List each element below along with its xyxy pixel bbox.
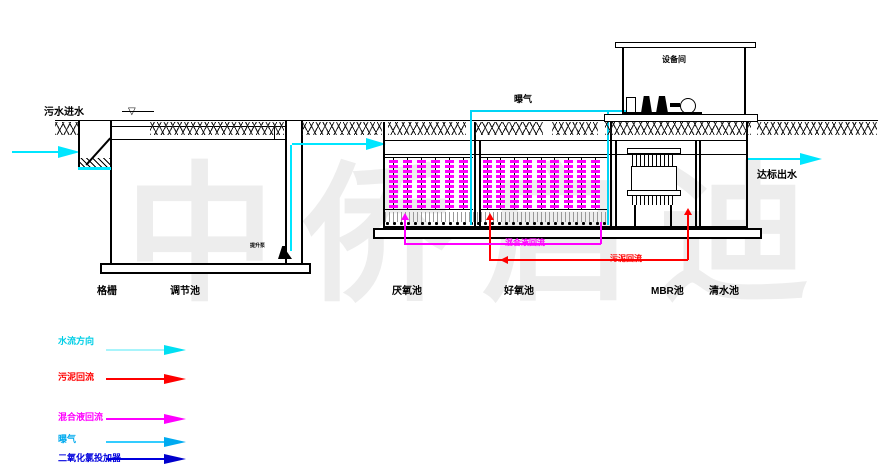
legend-arrow-line — [106, 349, 164, 351]
divider-mbr-clearwater-b — [699, 140, 701, 228]
soil-hatch-segment — [475, 122, 543, 135]
sludge-return-riser-mbr — [687, 213, 689, 260]
lift-pump-label: 提升泵 — [250, 244, 265, 249]
legend-item-label: 曝气 — [58, 435, 76, 444]
soil-hatch-segment — [55, 122, 78, 135]
mbr-module-leg-left — [634, 205, 636, 226]
equipment-room-label: 设备间 — [662, 56, 686, 64]
pump-pipe-vertical — [290, 145, 292, 251]
blower-2 — [656, 96, 668, 113]
media-column-packing — [550, 160, 559, 208]
media-column-packing — [417, 160, 426, 208]
media-column-packing — [564, 160, 573, 208]
biotank-left-wall-stub — [383, 122, 385, 140]
outlet-arrow-head — [800, 153, 822, 165]
sludge-return-riser-aerobic — [489, 218, 491, 260]
sludge-return-horizontal — [489, 259, 688, 261]
soil-hatch-segment — [388, 122, 466, 135]
legend-arrow-line — [106, 418, 164, 420]
tank-label-anaerobic: 厌氧池 — [392, 287, 422, 297]
tank-label-aerobic: 好氧池 — [504, 287, 534, 297]
media-column-packing — [510, 160, 519, 208]
tank-label-clearwater: 清水池 — [709, 287, 739, 297]
process-flow-diagram: 中侨启迪 污水进水 ▽ 提升泵 曝气 — [0, 0, 880, 473]
legend-arrow-head — [164, 414, 186, 424]
biotank-right-wall — [746, 140, 748, 228]
media-column-packing — [389, 160, 398, 208]
media-column-packing — [445, 160, 454, 208]
media-column-packing — [537, 160, 546, 208]
regtank-right-wall — [285, 120, 287, 263]
media-column-packing — [523, 160, 532, 208]
legend-arrow-head — [164, 454, 186, 464]
media-column-packing — [496, 160, 505, 208]
legend-arrow-head — [164, 437, 186, 447]
legend-arrow-line — [106, 378, 164, 380]
media-column-packing — [459, 160, 468, 208]
media-column-packing — [577, 160, 586, 208]
pump-pipe-horizontal — [292, 143, 368, 145]
soil-hatch-segment — [552, 122, 598, 135]
sludge-return-arrow-aerobic — [486, 213, 494, 220]
mbr-module-box — [631, 166, 677, 192]
divider-mbr-clearwater-a — [695, 140, 697, 228]
divider-aerobic-mbr-a — [610, 140, 612, 228]
legend-item-label: 水流方向 — [58, 337, 94, 346]
legend-item-label: 混合液回流 — [58, 413, 103, 422]
biotank-rim-bottom — [383, 154, 748, 155]
media-column-packing — [431, 160, 440, 208]
equipment-room-platform — [604, 114, 758, 122]
mixed-return-horizontal — [404, 243, 601, 245]
biotank-rim-top — [383, 140, 748, 141]
divider-aerobic-mbr-b — [615, 140, 617, 228]
legend-arrow-line — [106, 441, 164, 443]
mbr-module-leg-right — [670, 205, 672, 226]
equipment-room-roof — [615, 42, 756, 48]
legend: 水流方向污泥回流混合液回流曝气二氧化氯投加器 — [0, 0, 250, 473]
sludge-return-arrow-mbr — [684, 208, 692, 215]
equipment-room-left-wall — [622, 47, 624, 115]
media-column-packing — [591, 160, 600, 208]
aeration-pipe-label: 曝气 — [514, 95, 532, 104]
mixed-return-riser-aerobic — [600, 222, 602, 244]
media-column-packing — [403, 160, 412, 208]
aeration-pipe-horizontal — [470, 110, 628, 112]
sludge-return-label: 污泥回流 — [610, 255, 642, 263]
mixed-return-riser-anaerobic — [404, 218, 406, 245]
anaerobic-media-top-line — [385, 157, 473, 158]
mixed-return-label: 混合液回流 — [505, 239, 545, 247]
sludge-return-arrow-left — [500, 256, 508, 264]
mbr-module-top-comb — [632, 154, 674, 166]
equipment-base-line — [622, 112, 702, 114]
earth-wall — [301, 120, 303, 263]
legend-arrow-head — [164, 374, 186, 384]
aeration-drop-pipe-1 — [470, 110, 472, 225]
pump-shaft — [670, 103, 680, 107]
equipment-room-right-wall — [744, 47, 746, 115]
biotank-base-slab — [373, 228, 762, 239]
legend-arrow-head — [164, 345, 186, 355]
soil-hatch-segment — [605, 122, 751, 135]
media-column-packing — [483, 160, 492, 208]
anaerobic-media-bottom-line — [385, 209, 473, 210]
tank-label-mbr: MBR池 — [651, 287, 684, 297]
soil-hatch-segment — [757, 122, 877, 135]
aerobic-media-bottom-line — [481, 209, 609, 210]
mbr-module-bottom-comb — [632, 196, 674, 205]
soil-hatch-segment — [150, 122, 284, 135]
legend-arrow-line — [106, 458, 164, 460]
outlet-label: 达标出水 — [757, 171, 797, 181]
outlet-arrow-line — [748, 158, 800, 160]
diffuser-dots-row — [385, 221, 608, 226]
blower-1 — [641, 96, 652, 113]
legend-item-label: 污泥回流 — [58, 373, 94, 382]
mixed-return-arrow-up — [401, 213, 409, 220]
soil-hatch-segment — [302, 122, 382, 135]
